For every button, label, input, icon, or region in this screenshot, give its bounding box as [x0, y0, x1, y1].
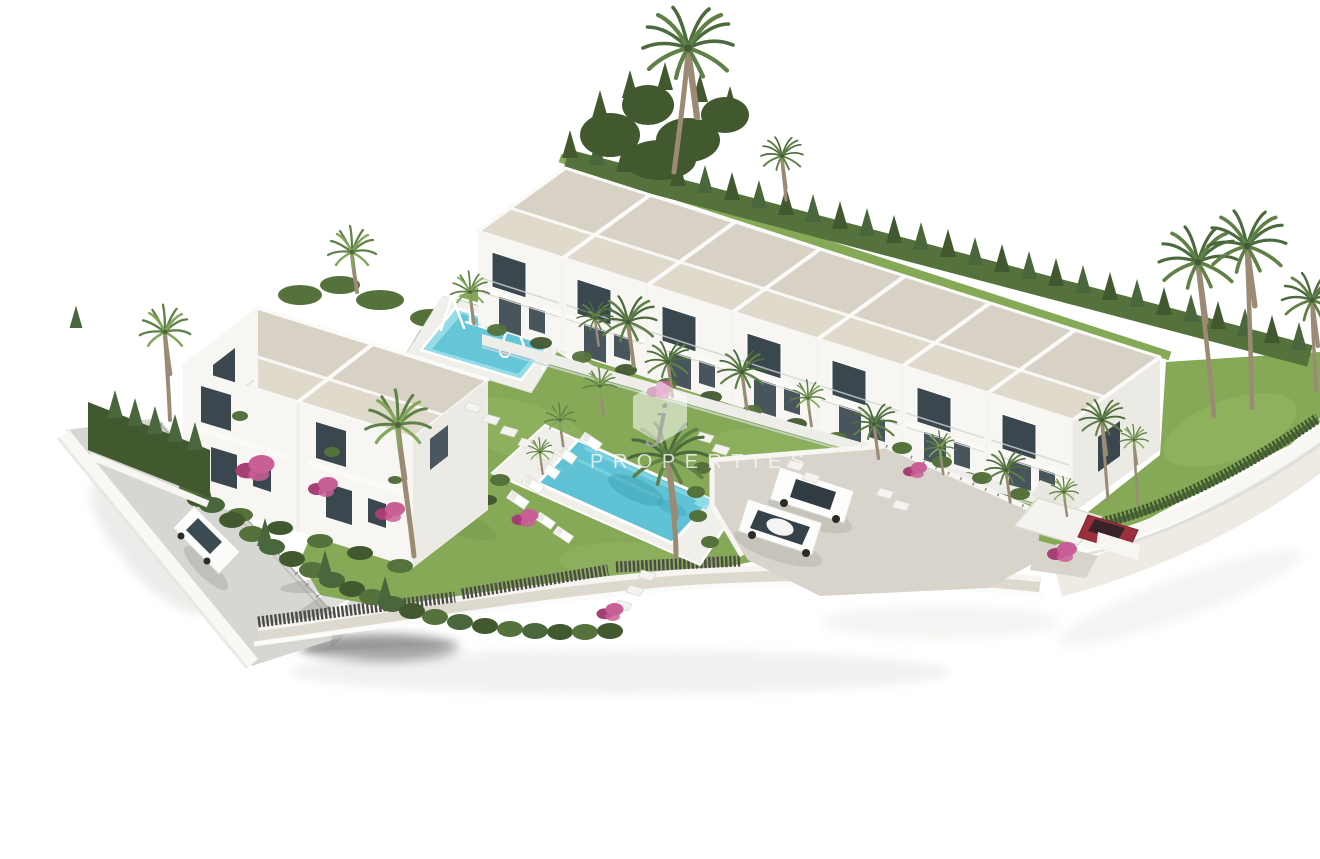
- watermark-brand-text: PROPERTIES: [590, 451, 814, 473]
- palm-tree: [761, 137, 803, 188]
- development-render: j PROPERTIES: [0, 0, 1320, 859]
- render-canvas: j PROPERTIES: [0, 0, 1320, 859]
